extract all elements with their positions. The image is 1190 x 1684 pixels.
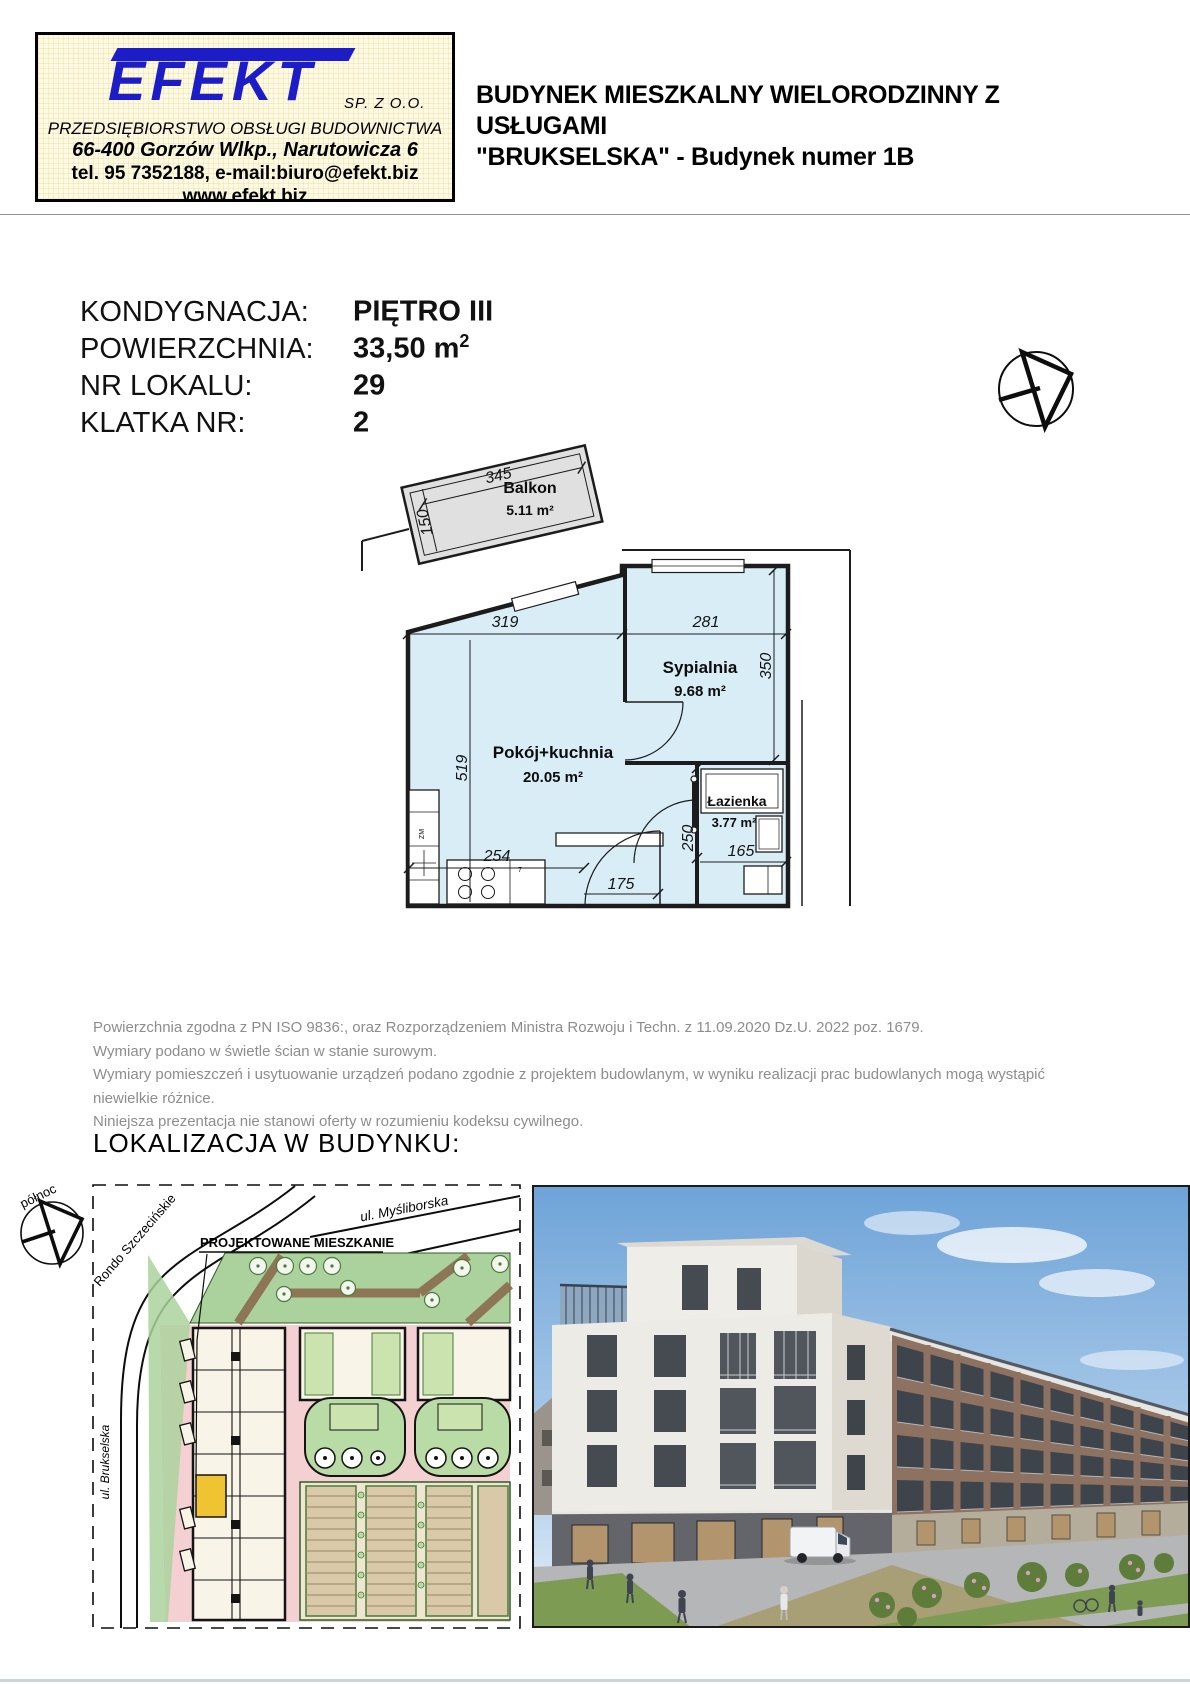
room-area-sypialnia: 9.68 m² — [674, 683, 726, 700]
info-row-nr-lokalu: NR LOKALU:29 — [80, 360, 493, 397]
document-title: BUDYNEK MIESZKALNY WIELORODZINNY Z USŁUG… — [476, 80, 1136, 173]
parking-area — [300, 1482, 510, 1620]
dim-519: 519 — [454, 755, 471, 782]
logo-address: 66-400 Gorzów Wlkp., Narutowicza 6 — [38, 139, 452, 162]
room-label-balkon: Balkon — [503, 480, 556, 497]
page-bottom-divider — [0, 1679, 1190, 1682]
company-logo-box: EFEKT SP. Z O.O. PRZEDSIĘBIORSTWO OBSŁUG… — [35, 32, 455, 202]
logo-suffix: SP. Z O.O. — [344, 95, 425, 112]
title-line-1: BUDYNEK MIESZKALNY WIELORODZINNY Z USŁUG… — [476, 80, 1136, 142]
site-north-compass-icon — [21, 1201, 83, 1264]
dim-254: 254 — [483, 848, 511, 865]
site-plan: północ Rondo Szczecińskie ul. Myśliborsk… — [8, 1180, 523, 1635]
room-area-lazienka: 3.77 m² — [712, 815, 757, 830]
logo-subtitle: PRZEDSIĘBIORSTWO OBSŁUGI BUDOWNICTWA — [38, 119, 452, 139]
dim-165: 165 — [728, 843, 755, 860]
highlighted-apartment[interactable] — [196, 1475, 226, 1517]
note-line: Wymiary podano w świetle ścian w stanie … — [93, 1040, 1113, 1064]
balcony-outline: 345 150 — [402, 445, 603, 563]
street-label-mysliborska: ul. Myśliborska — [359, 1193, 450, 1225]
location-heading: LOKALIZACJA W BUDYNKU: — [93, 1128, 460, 1159]
room-area-pokoj: 20.05 m² — [523, 769, 583, 786]
dim-175: 175 — [608, 876, 635, 893]
title-line-2: "BRUKSELSKA" - Budynek numer 1B — [476, 142, 1136, 173]
dim-350: 350 — [758, 653, 775, 680]
note-line: Powierzchnia zgodna z PN ISO 9836:, oraz… — [93, 1016, 1113, 1040]
buildings-center — [300, 1328, 510, 1400]
page: { "header": { "logo": { "brand": "EFEKT"… — [0, 0, 1190, 1684]
floor-plan: 345 150 Balkon 5.11 m² ZM 7 — [320, 425, 865, 925]
unit-info: KONDYGNACJA:PIĘTRO III POWIERZCHNIA:33,5… — [80, 286, 493, 434]
note-line: Wymiary pomieszczeń i usytuowanie urządz… — [93, 1063, 1113, 1110]
header-divider — [0, 214, 1190, 215]
dim-319: 319 — [492, 614, 519, 631]
street-label-brukselska: ul. Brukselska — [98, 1424, 112, 1499]
dim-281: 281 — [692, 614, 720, 631]
fixture-label-zm: ZM — [419, 829, 426, 839]
room-label-sypialnia: Sypialnia — [663, 658, 738, 677]
roof-terrace-railing — [560, 1285, 627, 1325]
info-label: KLATKA NR: — [80, 405, 353, 442]
room-area-balkon: 5.11 m² — [506, 502, 554, 518]
hall-partition — [556, 833, 663, 846]
building-render — [532, 1185, 1190, 1628]
info-row-kondygnacja: KONDYGNACJA:PIĘTRO III — [80, 286, 493, 323]
callout-label: PROJEKTOWANE MIESZKANIE — [200, 1235, 394, 1250]
logo-contact: tel. 95 7352188, e-mail:biuro@efekt.biz — [38, 163, 452, 185]
logo-brand: EFEKT — [108, 53, 317, 109]
legal-notes: Powierzchnia zgodna z PN ISO 9836:, oraz… — [93, 1016, 1113, 1134]
logo-website[interactable]: www.efekt.biz — [38, 186, 452, 208]
info-row-powierzchnia: POWIERZCHNIA:33,50 m2 — [80, 323, 493, 360]
info-value-sup: 2 — [459, 331, 469, 351]
park-band — [190, 1253, 510, 1323]
north-compass-icon — [985, 340, 1085, 440]
room-label-pokoj: Pokój+kuchnia — [493, 743, 614, 762]
room-label-lazienka: Łazienka — [707, 793, 766, 809]
dim-250: 250 — [680, 825, 697, 853]
